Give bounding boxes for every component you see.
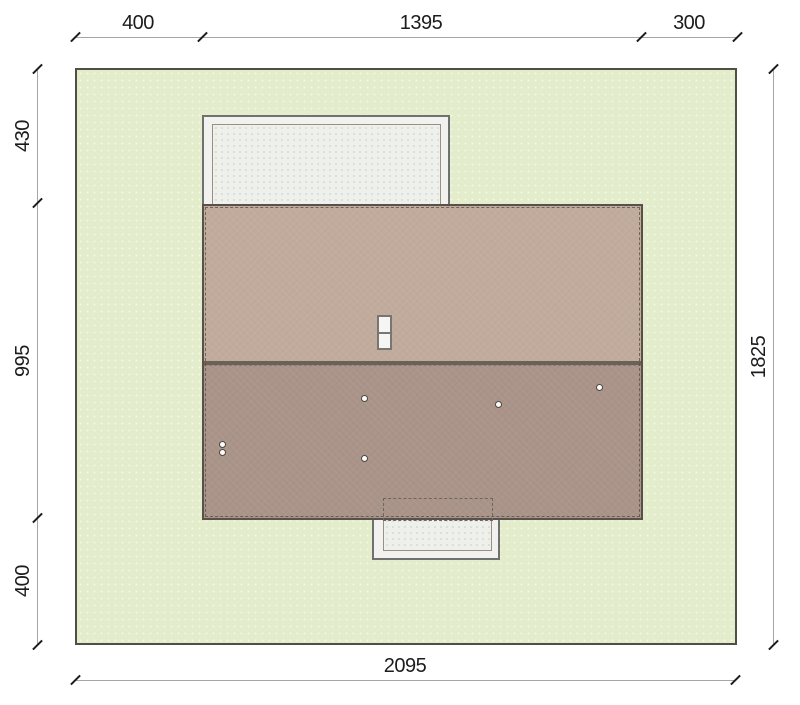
dimension-label-right-1825: 1825 <box>748 317 770 397</box>
terrace-top-inner <box>212 124 441 207</box>
chimney <box>377 315 392 350</box>
terrace-bottom-inner <box>383 517 492 551</box>
roof-vent <box>361 395 368 402</box>
roof-vent <box>495 401 502 408</box>
dimension-label-top-300: 300 <box>649 12 729 34</box>
dimension-label-left-400: 400 <box>12 541 34 621</box>
dimension-label-left-995: 995 <box>12 321 34 401</box>
chimney-divider <box>379 332 390 334</box>
roof-vent <box>596 384 603 391</box>
dimension-line-right <box>773 69 774 645</box>
roof-lower-slope <box>204 365 641 518</box>
roof-vent <box>219 449 226 456</box>
roof-outline <box>202 204 643 520</box>
dimension-label-top-1395: 1395 <box>381 12 461 34</box>
dimension-label-left-430: 430 <box>12 96 34 176</box>
dimension-label-top-400: 400 <box>98 12 178 34</box>
roof-vent <box>361 455 368 462</box>
roof-vent <box>219 441 226 448</box>
dimension-line-bottom <box>75 680 736 681</box>
terrace-under-eaves-dashed-outline <box>383 498 493 521</box>
dimension-line-left <box>37 69 38 645</box>
site-plan-canvas: 400 1395 300 430 995 400 1825 2095 <box>0 0 800 705</box>
dimension-label-bottom-2095: 2095 <box>365 655 445 677</box>
roof-upper-slope <box>204 206 641 361</box>
